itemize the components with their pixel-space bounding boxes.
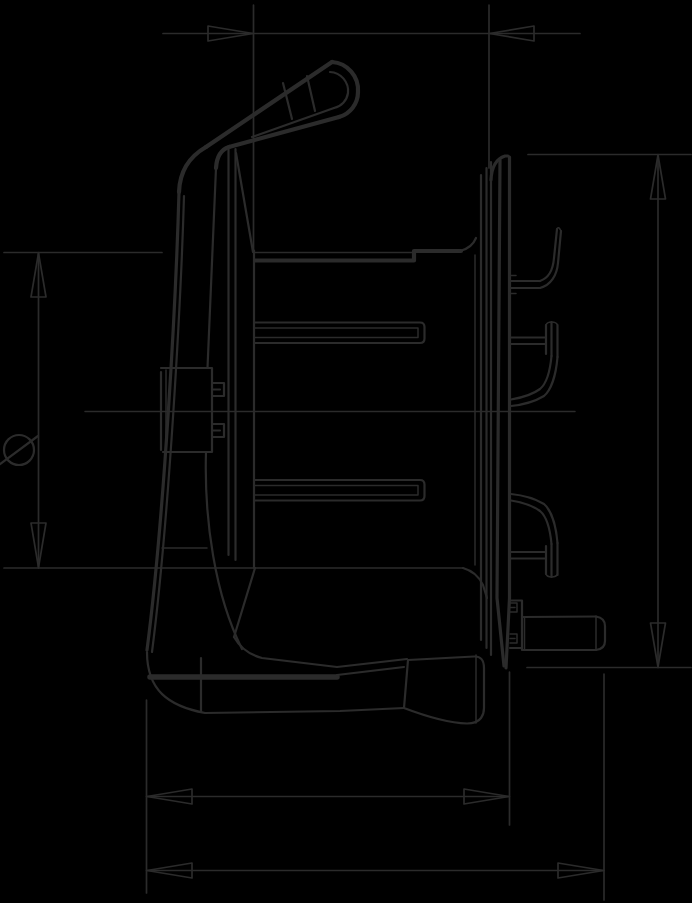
handle-grip-divider xyxy=(307,76,315,111)
technical-drawing xyxy=(0,0,692,903)
knob-joints xyxy=(525,617,597,651)
dimension-drum-diameter xyxy=(0,253,463,569)
crank-hub xyxy=(510,601,605,651)
hook-lower xyxy=(511,494,558,577)
drum-slot-bar-upper xyxy=(255,323,425,344)
drum-top-fillet xyxy=(460,238,476,251)
flange-plate-front xyxy=(497,160,504,666)
hook-upper xyxy=(510,228,561,294)
handle-outer-bend xyxy=(179,147,206,192)
dimension-overall-depth xyxy=(147,674,605,900)
drum-rim-taper xyxy=(236,153,253,252)
crank-knob xyxy=(523,617,605,651)
slot-bar-outline xyxy=(255,323,425,344)
slot-bar-inner xyxy=(255,486,418,496)
diameter-symbol xyxy=(0,435,38,465)
bracket-tab-upper xyxy=(212,383,224,396)
flange-plate-back xyxy=(506,157,510,668)
hook-clip-lines xyxy=(546,322,558,357)
hook-arm xyxy=(511,338,546,345)
hook-sweep-outer xyxy=(540,229,557,281)
knob-sides xyxy=(523,617,596,651)
drawing-canvas xyxy=(0,0,692,903)
diameter-symbol-slash xyxy=(0,436,38,464)
base-arm-lines xyxy=(337,659,407,675)
leg-front-line xyxy=(208,168,217,368)
carry-handle xyxy=(179,62,358,192)
base xyxy=(147,652,484,724)
drum-base-join xyxy=(234,637,337,667)
foot-outline xyxy=(404,656,484,723)
leg-outer-line xyxy=(147,192,179,650)
hub-detail-upper xyxy=(510,603,517,612)
handle-tip xyxy=(332,62,358,117)
hook-clip-lines xyxy=(546,543,558,577)
base-bottom-outline xyxy=(147,652,404,713)
cable-drum xyxy=(229,149,488,667)
hook-arm xyxy=(511,552,546,559)
handle-inner-bend xyxy=(216,147,229,168)
rubber-foot xyxy=(404,655,484,724)
drum-bottom-fillet xyxy=(463,568,487,598)
hook-middle xyxy=(511,322,558,406)
slot-bar-outline xyxy=(255,480,425,501)
handle-tip-inner xyxy=(330,72,348,108)
bracket-tab-lower xyxy=(212,424,224,437)
drum-bottom-diagonal xyxy=(234,568,255,637)
hook-arm xyxy=(511,281,540,288)
hub-detail-lower xyxy=(510,634,517,643)
knob-end-cap xyxy=(596,617,605,651)
dimension-top-width xyxy=(163,5,580,250)
drum-slot-bar-lower xyxy=(255,480,425,501)
flange-hooks xyxy=(510,228,561,577)
slot-bar-inner xyxy=(255,328,418,338)
